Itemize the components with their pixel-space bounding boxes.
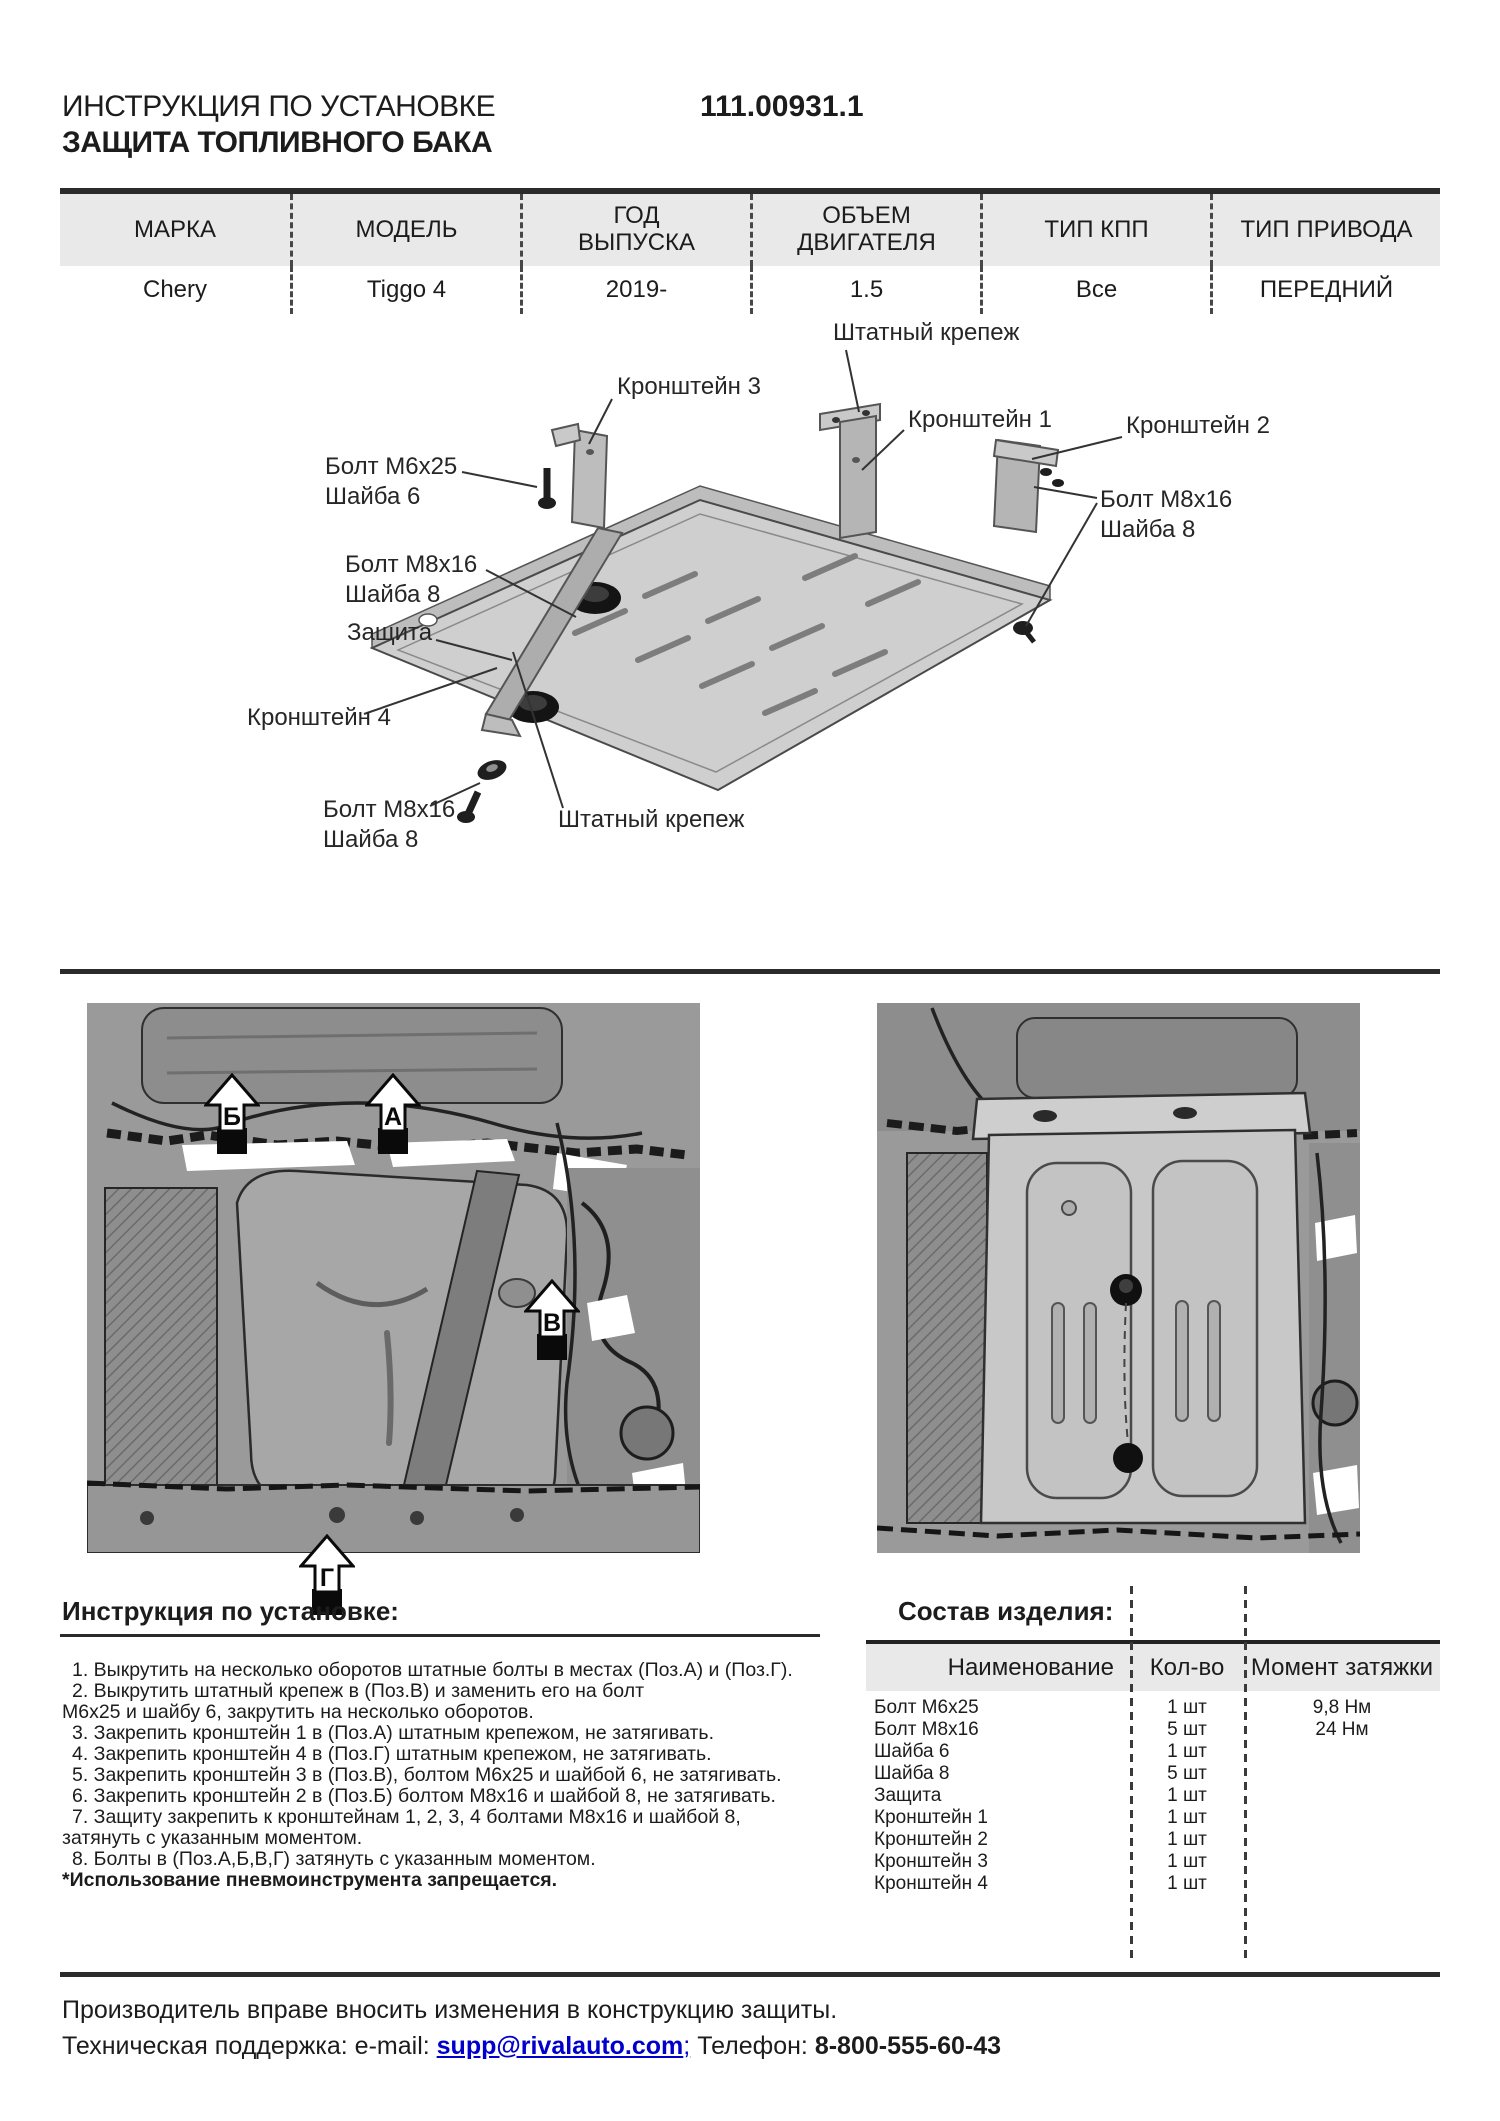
parts-row: Кронштейн 41 шт [866,1873,1440,1895]
parts-row: Кронштейн 11 шт [866,1807,1440,1829]
parts-row: Болт М6х251 шт9,8 Нм [866,1697,1440,1719]
label-factory-fastener-bottom: Штатный крепеж [558,805,744,835]
instruction-step: 2. Выкрутить штатный крепеж в (Поз.В) и … [62,1681,852,1702]
position-marker-v: В [524,1279,580,1360]
parts-row: Кронштейн 21 шт [866,1829,1440,1851]
label-bracket-2: Кронштейн 2 [1126,411,1270,441]
exploded-diagram [0,0,1500,960]
instruction-step: 1. Выкрутить на несколько оборотов штатн… [62,1660,852,1681]
instructions-heading: Инструкция по установке: [62,1596,399,1627]
parts-col-torque: Момент затяжки [1244,1654,1440,1682]
parts-table-rows: Болт М6х251 шт9,8 Нм Болт М8х165 шт24 Нм… [866,1697,1440,1895]
label-bolt-m8x16-left: Болт М8х16 Шайба 8 [345,550,477,610]
parts-col-name: Наименование [866,1654,1130,1682]
parts-divider-dashed-2 [1244,1586,1247,1964]
instruction-step: 4. Закрепить кронштейн 4 в (Поз.Г) штатн… [62,1744,852,1765]
parts-col-qty: Кол-во [1130,1654,1244,1682]
parts-table-header: Наименование Кол-во Момент затяжки [866,1640,1440,1691]
label-bolt-m6x25: Болт М6х25 Шайба 6 [325,452,457,512]
parts-heading: Состав изделия: [898,1596,1113,1627]
manufacturer-note: Производитель вправе вносить изменения в… [62,1996,837,2025]
instruction-step-cont: затянуть с указанным моментом. [62,1828,852,1849]
instructions-list: 1. Выкрутить на несколько оборотов штатн… [62,1660,852,1891]
instruction-sheet-page: ИНСТРУКЦИЯ ПО УСТАНОВКЕ ЗАЩИТА ТОПЛИВНОГ… [0,0,1500,2121]
divider-bottom [60,1972,1440,1977]
phone-label: Телефон: [690,2032,815,2060]
instruction-step: 6. Закрепить кронштейн 2 в (Поз.Б) болто… [62,1786,852,1807]
parts-row: Шайба 85 шт [866,1763,1440,1785]
divider-top [60,969,1440,974]
label-bracket-4: Кронштейн 4 [247,703,391,733]
parts-divider-dashed-1 [1130,1586,1133,1964]
support-phone: 8-800-555-60-43 [815,2032,1001,2060]
label-factory-fastener-top: Штатный крепеж [833,318,1019,348]
label-bolt-m8x16-right: Болт М8х16 Шайба 8 [1100,485,1232,545]
label-bracket-1: Кронштейн 1 [908,405,1052,435]
position-marker-b: Б [204,1073,260,1154]
instruction-step: 3. Закрепить кронштейн 1 в (Поз.А) штатн… [62,1723,852,1744]
instructions-underline [60,1634,820,1637]
support-label: Техническая поддержка: e-mail: [62,2032,437,2060]
pneumatic-tool-warning: *Использование пневмоинструмента запреща… [62,1870,852,1891]
instruction-step: 5. Закрепить кронштейн 3 в (Поз.В), болт… [62,1765,852,1786]
label-bracket-3: Кронштейн 3 [617,372,761,402]
photo-underbody-after [877,1003,1360,1553]
position-marker-a: А [365,1073,421,1154]
parts-row: Кронштейн 31 шт [866,1851,1440,1873]
label-shield: Защита [347,618,432,648]
parts-row: Болт М8х165 шт24 Нм [866,1719,1440,1741]
support-line: Техническая поддержка: e-mail: supp@riva… [62,2032,1001,2061]
label-bolt-m8x16-bottom: Болт М8х16 Шайба 8 [323,795,455,855]
instruction-step: 8. Болты в (Поз.А,Б,В,Г) затянуть с указ… [62,1849,852,1870]
parts-row: Защита1 шт [866,1785,1440,1807]
support-email-link[interactable]: supp@rivalauto.com [437,2032,684,2060]
instruction-step: 7. Защиту закрепить к кронштейнам 1, 2, … [62,1807,852,1828]
parts-row: Шайба 61 шт [866,1741,1440,1763]
instruction-step-cont: М6х25 и шайбу 6, закрутить на несколько … [62,1702,852,1723]
